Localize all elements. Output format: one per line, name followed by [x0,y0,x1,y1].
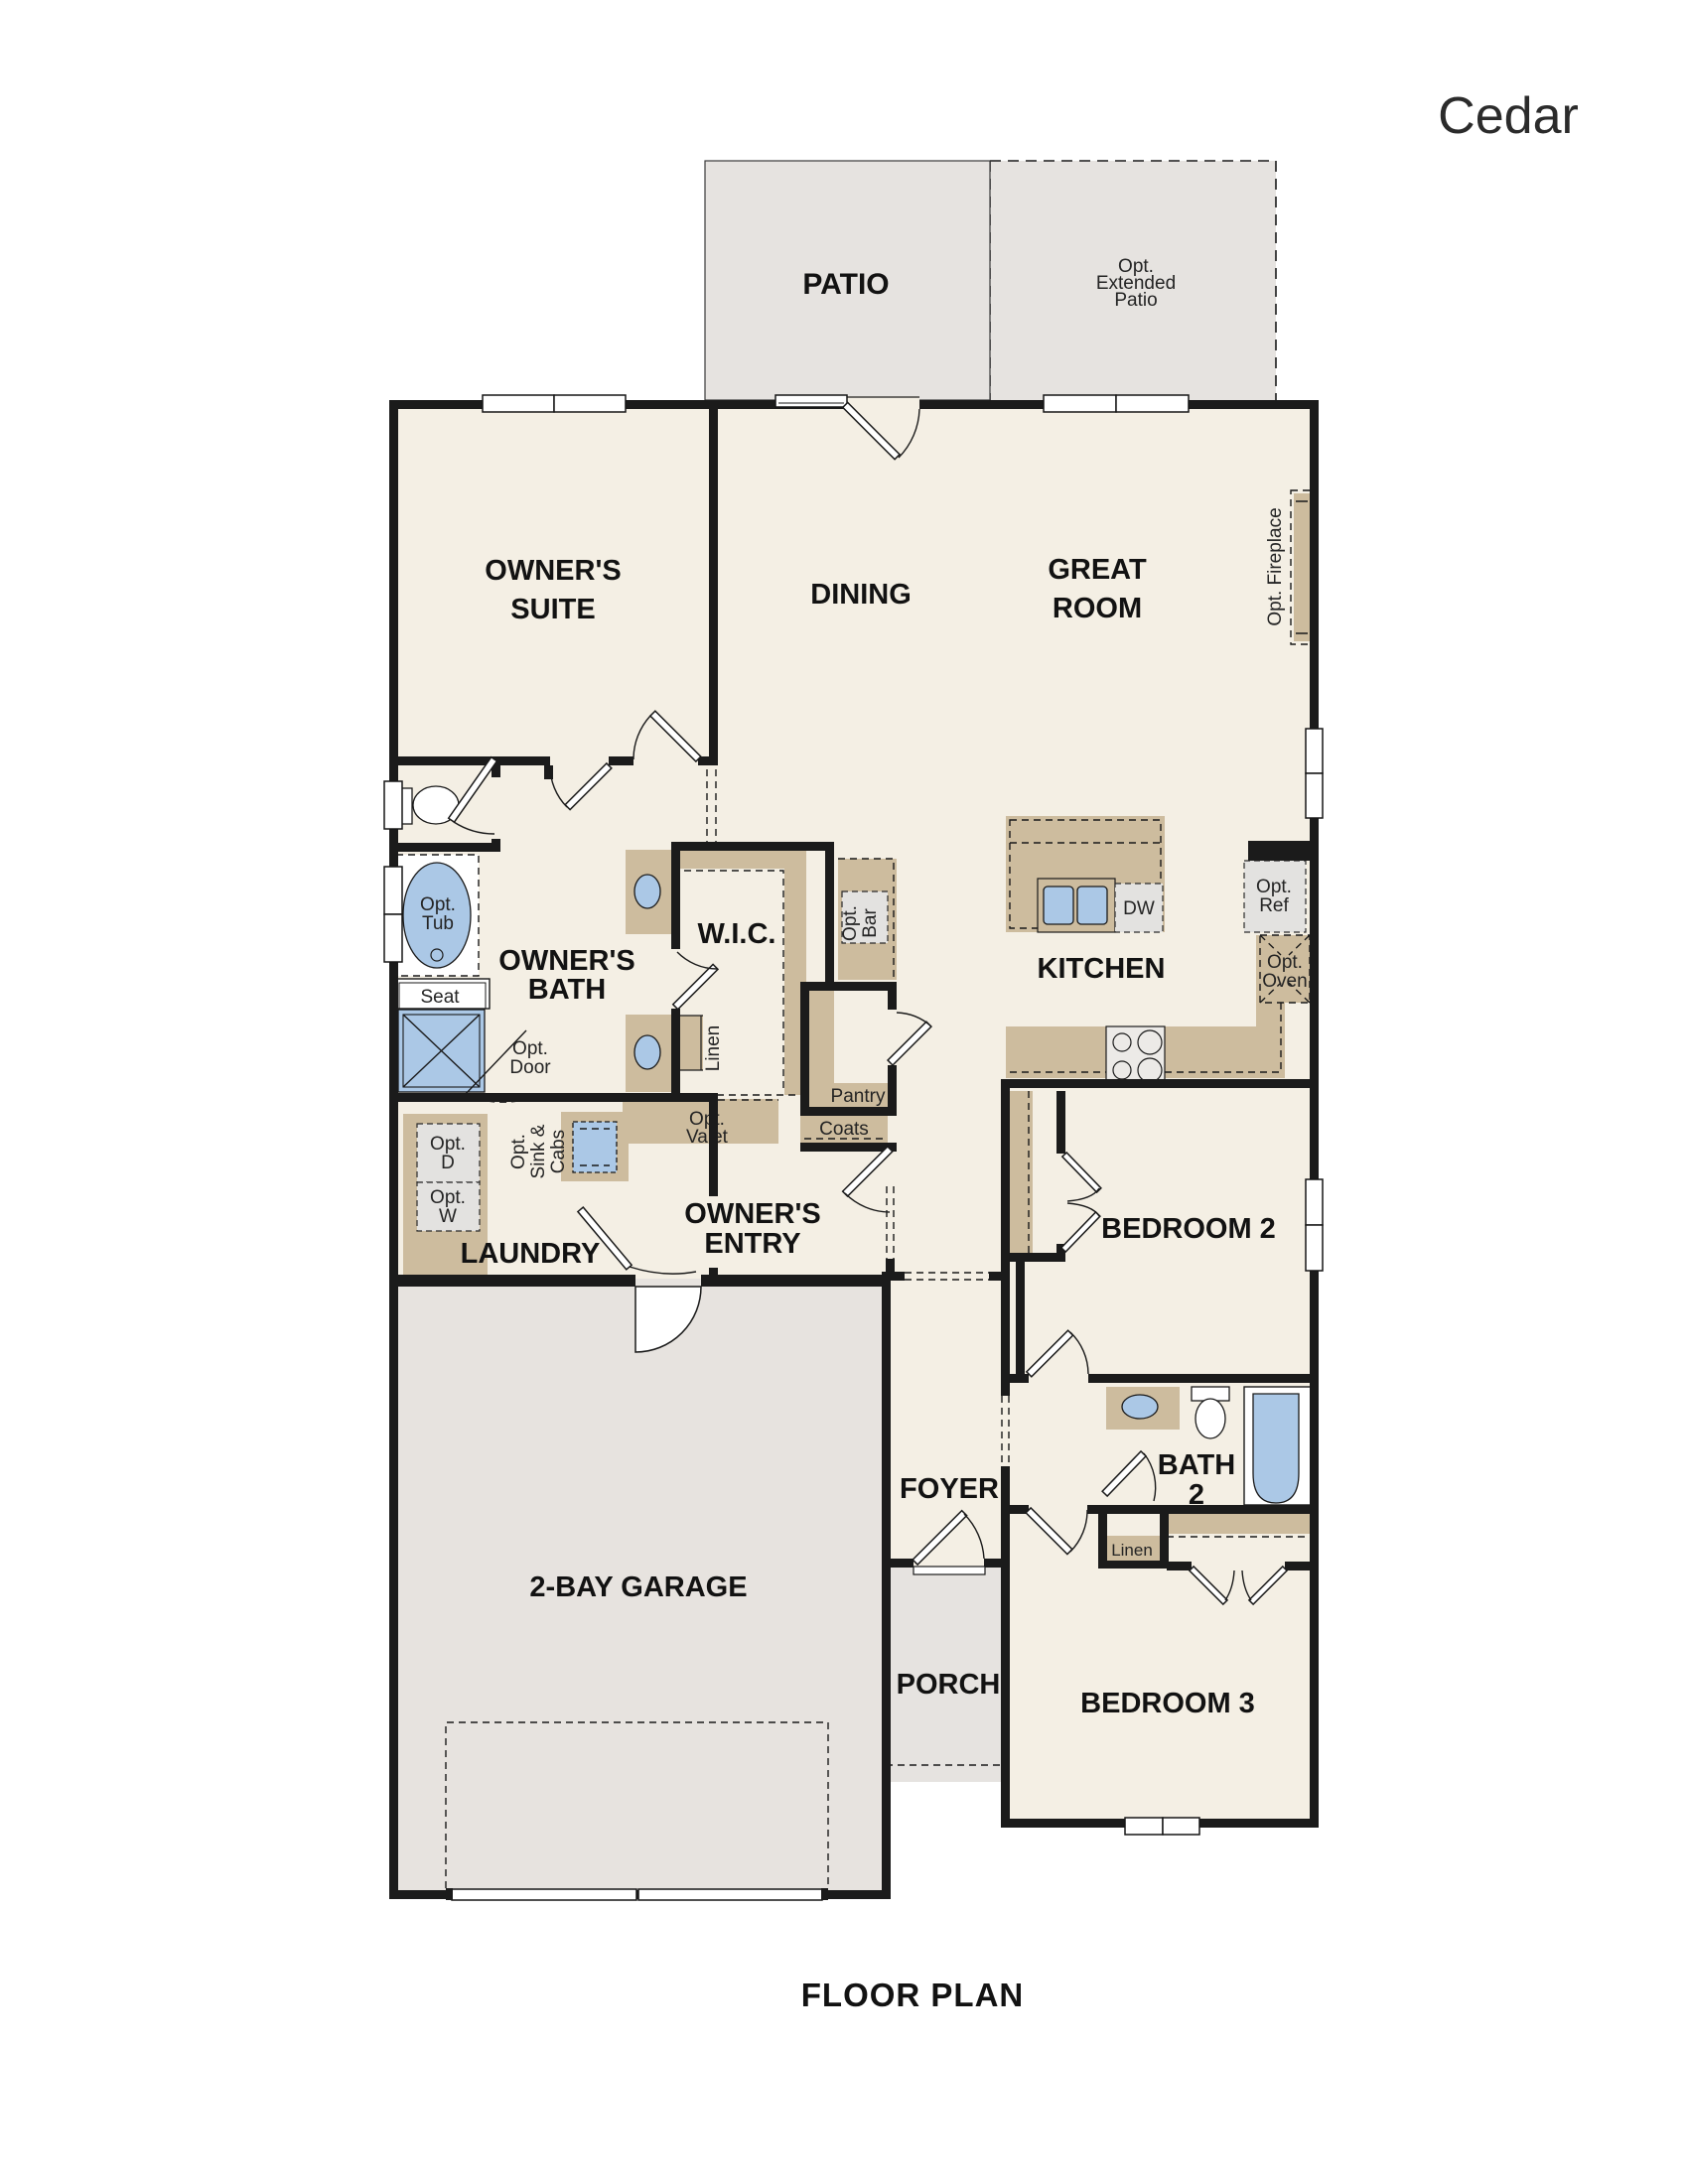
svg-text:Opt.: Opt. [508,1134,529,1169]
svg-text:FLOOR PLAN: FLOOR PLAN [801,1977,1024,2013]
svg-text:Sink &: Sink & [528,1124,549,1178]
svg-text:Opt.: Opt. [430,1134,466,1155]
svg-text:GREAT: GREAT [1048,554,1147,586]
svg-text:LAUNDRY: LAUNDRY [461,1238,601,1270]
svg-text:Tub: Tub [422,913,454,934]
svg-text:BATH: BATH [528,974,606,1006]
svg-text:Oven: Oven [1262,971,1307,992]
svg-text:PATIO: PATIO [802,268,889,301]
svg-text:SUITE: SUITE [510,594,595,625]
svg-text:OWNER'S: OWNER'S [485,555,621,587]
svg-text:Bar: Bar [860,908,881,938]
svg-text:Linen: Linen [1111,1541,1153,1560]
svg-text:Valet: Valet [686,1127,729,1148]
svg-text:Opt. Fireplace: Opt. Fireplace [1265,507,1286,625]
svg-text:2-BAY GARAGE: 2-BAY GARAGE [529,1571,747,1603]
svg-text:ROOM: ROOM [1053,593,1142,624]
svg-text:FOYER: FOYER [900,1473,999,1505]
svg-text:OWNER'S: OWNER'S [684,1198,820,1230]
svg-text:KITCHEN: KITCHEN [1038,953,1166,985]
svg-text:BEDROOM 3: BEDROOM 3 [1080,1688,1255,1719]
svg-text:OWNER'S: OWNER'S [498,945,634,977]
svg-text:Opt.: Opt. [512,1038,548,1059]
svg-text:Opt.: Opt. [420,894,456,915]
svg-text:Cedar: Cedar [1438,87,1579,145]
svg-text:Coats: Coats [819,1119,869,1140]
svg-text:Opt.: Opt. [430,1187,466,1208]
svg-text:W.I.C.: W.I.C. [698,918,776,950]
svg-text:BATH: BATH [1158,1449,1235,1481]
svg-text:Patio: Patio [1114,290,1157,311]
svg-text:DW: DW [1123,898,1155,919]
svg-text:Pantry: Pantry [831,1086,886,1107]
svg-text:Opt.: Opt. [840,905,861,941]
svg-text:Linen: Linen [703,1025,724,1072]
svg-text:BEDROOM 2: BEDROOM 2 [1101,1213,1276,1245]
svg-text:Seat: Seat [420,987,460,1008]
svg-text:ENTRY: ENTRY [704,1228,800,1260]
svg-text:D: D [441,1153,455,1173]
svg-text:W: W [439,1206,457,1227]
svg-text:Opt.: Opt. [1256,877,1292,897]
svg-text:2: 2 [1189,1479,1204,1511]
svg-text:Cabs: Cabs [548,1130,569,1173]
svg-text:PORCH: PORCH [897,1669,1001,1701]
svg-text:Ref: Ref [1259,895,1289,916]
svg-text:Opt.: Opt. [1267,952,1303,973]
svg-text:DINING: DINING [810,579,912,611]
svg-text:Door: Door [509,1057,551,1078]
